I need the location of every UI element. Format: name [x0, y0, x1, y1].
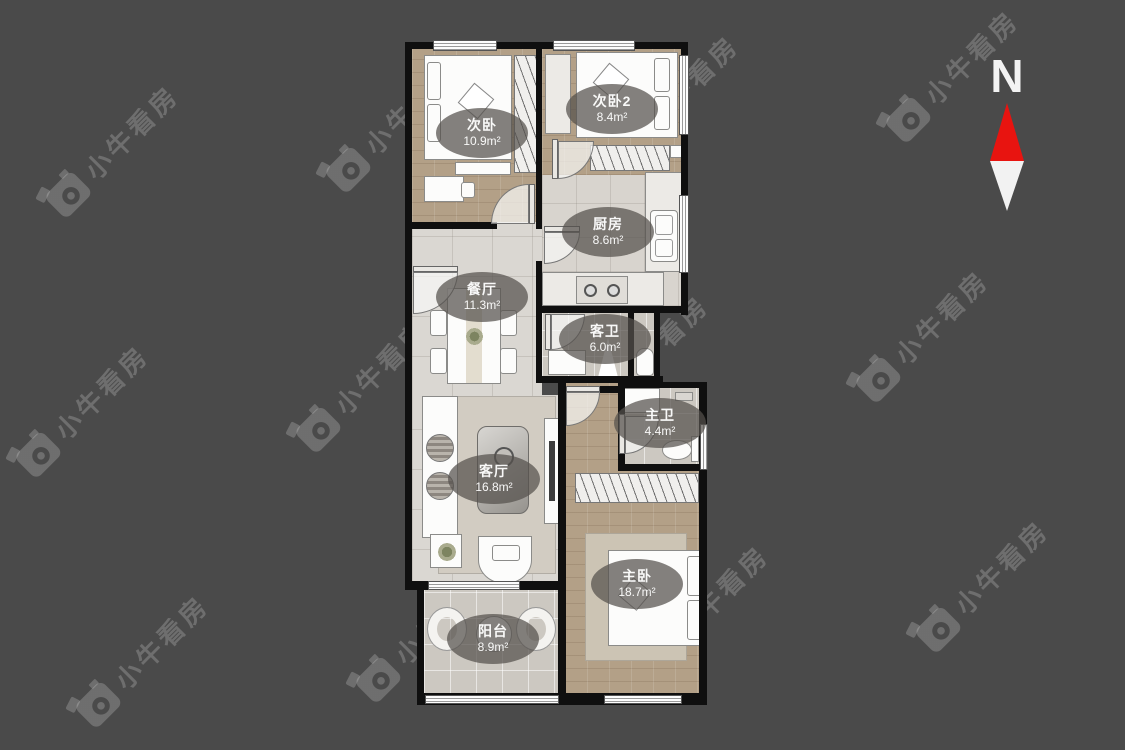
sink-basin: [655, 215, 673, 235]
room-name: 次卧2: [593, 92, 632, 110]
plant-icon: [438, 543, 456, 561]
wall: [536, 42, 542, 229]
room-area: 18.7m²: [618, 585, 655, 601]
wall: [417, 590, 424, 702]
camera-logo-icon: [13, 430, 62, 479]
wardrobe: [514, 55, 538, 173]
room-name: 客卫: [590, 322, 620, 340]
wall: [536, 306, 688, 313]
wardrobe: [590, 145, 670, 171]
closet: [545, 54, 571, 134]
watermark: 小牛看房: [912, 511, 1057, 656]
room-label-kitchen: 厨房 8.6m²: [562, 207, 654, 257]
room-label-master-bedroom: 主卧 18.7m²: [591, 559, 683, 609]
room-area: 16.8m²: [475, 480, 512, 496]
window: [425, 695, 559, 704]
wall: [536, 261, 542, 383]
pillow: [427, 62, 441, 100]
camera-logo-icon: [73, 680, 122, 729]
room-label-dining: 餐厅 11.3m²: [436, 272, 528, 322]
room-name: 客厅: [479, 462, 509, 480]
dining-chair: [430, 348, 447, 374]
window: [679, 195, 689, 273]
window: [679, 55, 689, 135]
room-label-bedroom3: 次卧2 8.4m²: [566, 84, 658, 134]
plant-stand: [430, 534, 462, 568]
floor-plan: 次卧 10.9m² 次卧2 8.4m² 厨房 8.6m² 餐厅 11.3m² 客…: [405, 42, 712, 712]
wall: [618, 382, 707, 388]
wall: [405, 222, 497, 229]
table-centerpiece: [466, 328, 483, 345]
wall: [520, 581, 566, 590]
wall: [654, 313, 660, 383]
room-name: 厨房: [593, 215, 623, 233]
wall: [558, 383, 566, 705]
sink-basin: [655, 239, 673, 257]
camera-logo-icon: [913, 605, 962, 654]
room-area: 6.0m²: [590, 340, 621, 356]
desk-chair: [461, 182, 475, 198]
camera-logo-icon: [293, 405, 342, 454]
room-area: 8.9m²: [478, 640, 509, 656]
room-area: 4.4m²: [645, 424, 676, 440]
watermark: 小牛看房: [852, 261, 997, 406]
wall: [618, 464, 707, 471]
room-label-guest-bath: 客卫 6.0m²: [559, 314, 651, 364]
window: [553, 40, 635, 51]
room-label-living: 客厅 16.8m²: [448, 454, 540, 504]
armchair: [478, 536, 532, 584]
watermark: 小牛看房: [42, 76, 187, 221]
camera-logo-icon: [353, 655, 402, 704]
wall: [405, 42, 412, 590]
south-arrow-icon: [990, 161, 1024, 211]
dresser: [455, 162, 511, 175]
burner: [607, 284, 620, 297]
wardrobe: [575, 473, 699, 503]
tv: [549, 441, 555, 501]
window: [604, 695, 682, 704]
room-label-master-bath: 主卫 4.4m²: [614, 398, 706, 448]
room-name: 主卫: [645, 406, 675, 424]
sofa-cushion: [426, 434, 454, 462]
page-background: { "page": { "background": "#4a4a4a" }, "…: [0, 0, 1125, 750]
room-area: 8.4m²: [597, 110, 628, 126]
room-area: 10.9m²: [463, 134, 500, 150]
burner: [584, 284, 597, 297]
watermark: 小牛看房: [72, 586, 217, 731]
camera-logo-icon: [43, 170, 92, 219]
door-leaf: [529, 184, 535, 224]
wall: [536, 222, 542, 227]
camera-logo-icon: [853, 355, 902, 404]
window: [433, 40, 497, 51]
pillow: [654, 58, 670, 92]
room-name: 餐厅: [467, 280, 497, 298]
room-label-balcony: 阳台 8.9m²: [447, 614, 539, 664]
north-compass: N: [975, 50, 1039, 211]
room-area: 8.6m²: [593, 233, 624, 249]
sliding-door: [428, 581, 520, 590]
wall: [412, 581, 428, 590]
room-area: 11.3m²: [464, 298, 500, 314]
room-name: 主卧: [622, 567, 652, 585]
room-label-bedroom2: 次卧 10.9m²: [436, 108, 528, 158]
kitchen-sink: [650, 210, 678, 262]
stove: [576, 276, 628, 304]
camera-logo-icon: [883, 95, 932, 144]
north-label: N: [990, 50, 1023, 103]
watermark: 小牛看房: [12, 336, 157, 481]
wall: [600, 386, 619, 393]
north-arrow-icon: [990, 103, 1024, 161]
dining-chair: [430, 310, 447, 336]
dining-chair: [500, 348, 517, 374]
room-name: 阳台: [478, 622, 508, 640]
desk: [424, 176, 464, 202]
room-name: 次卧: [467, 116, 497, 134]
camera-logo-icon: [323, 145, 372, 194]
pillow: [492, 545, 520, 561]
